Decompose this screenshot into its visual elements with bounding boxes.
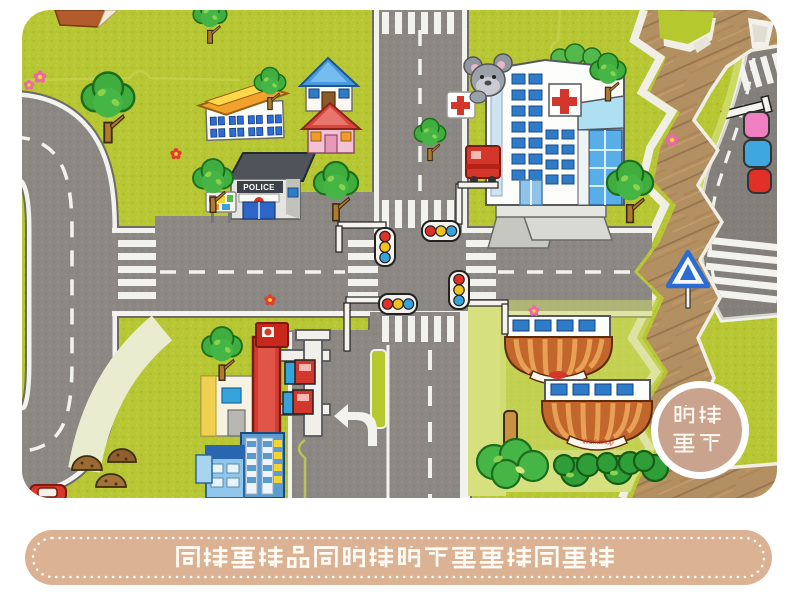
svg-text:POLICE: POLICE [243,183,275,192]
svg-text:Workshop: Workshop [582,438,614,446]
